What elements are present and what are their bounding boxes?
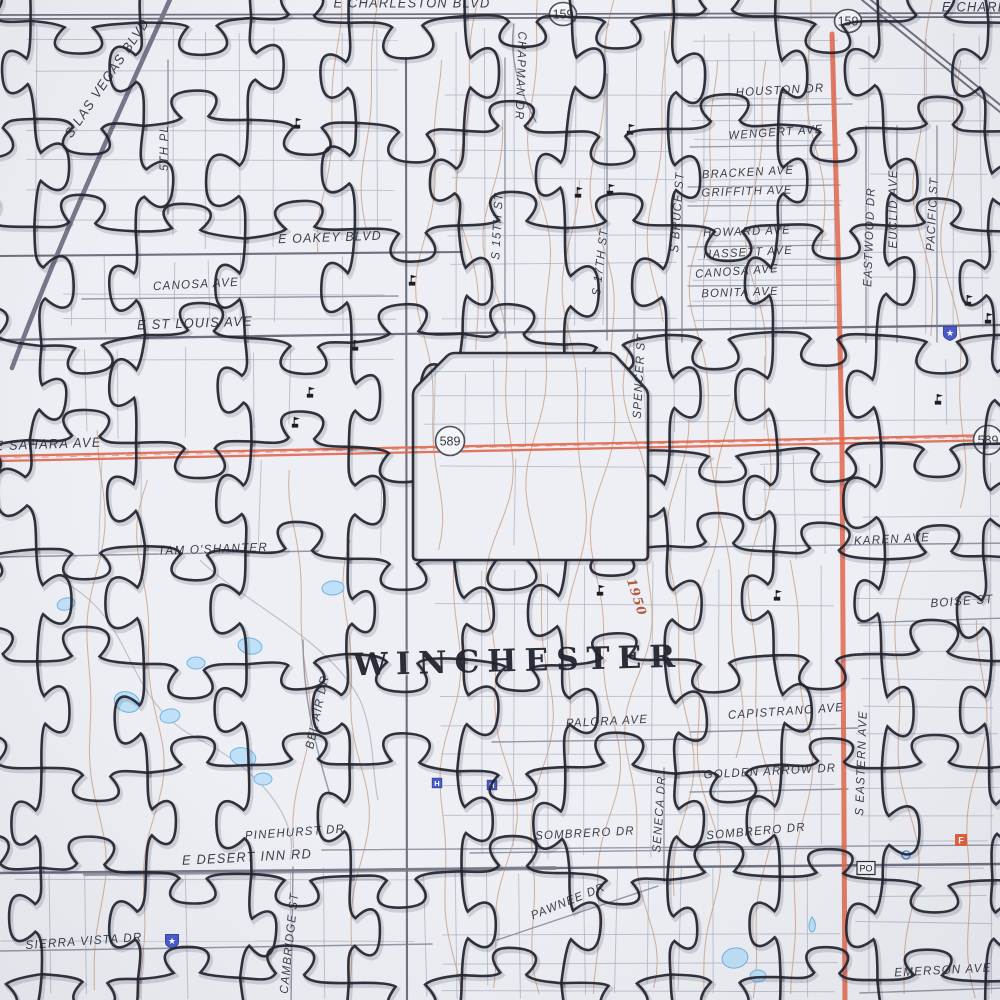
highway-shields: 159159589589	[436, 3, 1000, 456]
school-flag-icon	[307, 387, 315, 398]
street-label: E ST LOUIS AVE	[137, 313, 253, 332]
school-flag-icon	[294, 118, 302, 129]
svg-text:589: 589	[978, 433, 999, 447]
street-label: CANOSA AVE	[695, 261, 780, 281]
street-label: PAWNEE DR	[529, 880, 608, 923]
street-label: HOWARD AVE	[703, 222, 791, 239]
star-shield-icon: ★	[944, 327, 957, 341]
street-label: CAPISTRANO AVE	[727, 700, 844, 722]
puzzle-grid-lines	[0, 0, 1000, 1000]
street-label: EUCLID AVE	[886, 169, 900, 248]
hospital-icon: H	[487, 780, 497, 790]
svg-text:F: F	[958, 835, 964, 845]
highway-shield: 159	[835, 10, 862, 33]
school-flag-icon	[607, 184, 615, 195]
street-label: S BRUCE ST	[667, 171, 687, 253]
puzzle-map-photo: ★★HHPOF 159159589589 E CHARLESTON BLVDE …	[0, 0, 1000, 1000]
fire-station-icon: F	[955, 834, 967, 846]
well-icon	[902, 851, 910, 859]
school-flag-icon	[627, 124, 635, 135]
star-shield-icon: ★	[166, 935, 179, 949]
highway-shield: 159	[550, 3, 577, 26]
svg-text:H: H	[434, 779, 439, 788]
svg-text:589: 589	[440, 434, 461, 448]
svg-text:PO: PO	[859, 863, 872, 873]
minor-street-grid	[0, 25, 999, 999]
spring-icon	[809, 917, 815, 932]
street-label: CANOSA AVE	[153, 275, 240, 293]
street-label: S 15TH ST	[488, 192, 506, 260]
school-flag-icon	[774, 590, 782, 601]
street-label: CAMBRIDGE ST	[277, 892, 302, 995]
street-label: PACIFIC ST	[923, 177, 941, 252]
map-artwork: ★★HHPOF 159159589589	[0, 0, 1000, 1000]
street-label: HOUSTON DR	[735, 81, 824, 100]
street-label: E CHARLESTON BLVD	[334, 0, 491, 11]
water-ponds	[56, 580, 816, 982]
place-label: WINCHESTER	[353, 639, 684, 684]
svg-text:★: ★	[168, 936, 176, 946]
street-label: EMERSON AVE	[894, 960, 992, 979]
school-flag-icon	[935, 394, 943, 405]
school-flag-icon	[575, 187, 583, 198]
roads	[0, 0, 1000, 1000]
post-office-icon: PO	[857, 862, 875, 875]
svg-text:★: ★	[946, 328, 954, 338]
street-label: BONITA AVE	[701, 284, 779, 301]
street-label: EASTWOOD DR	[860, 187, 877, 287]
street-label: S-17TH ST	[589, 227, 611, 296]
svg-text:H: H	[489, 781, 494, 790]
street-label: SIERRA VISTA DR	[25, 930, 143, 952]
map-labels: E CHARLESTON BLVDE CHARLS LAS VEGAS BLVD…	[0, 0, 1000, 1000]
street-label: WENGERT AVE	[728, 122, 824, 143]
svg-text:159: 159	[838, 14, 859, 28]
highway-shield: 589	[974, 426, 1000, 455]
street-label: BEL AIR DR	[302, 674, 331, 750]
street-label: KAREN AVE	[854, 530, 931, 548]
contour-elevation-label: 1950	[624, 576, 650, 618]
school-flag-icon	[409, 275, 417, 286]
street-label: BRACKEN AVE	[702, 163, 795, 182]
school-flag-icon	[965, 295, 973, 306]
street-label: PINEHURST DR	[244, 822, 345, 843]
street-label: E DESERT INN RD	[182, 846, 313, 868]
street-label: GOLDEN ARROW DR	[703, 761, 836, 782]
large-center-puzzle-piece-outline	[413, 353, 648, 560]
street-label: TAM O'SHANTER	[158, 540, 269, 558]
school-flag-icon	[292, 417, 300, 428]
street-label: E SAHARA AVE	[0, 435, 102, 454]
street-label: BOISE ST	[930, 592, 994, 610]
highway-shield: 589	[436, 427, 465, 456]
street-label: CHAPMAN DR	[512, 31, 529, 120]
street-label: 5TH PL	[157, 125, 171, 171]
street-label: GRIFFITH AVE	[701, 182, 792, 199]
street-label: SPENCER ST	[630, 333, 648, 419]
hospital-icon: H	[432, 778, 442, 788]
school-flag-icon	[597, 585, 605, 596]
photo-vignette	[0, 0, 1000, 1000]
puzzle-cut-lines	[0, 0, 1000, 1000]
map-symbols: ★★HHPOF	[166, 118, 994, 949]
school-flag-icon	[985, 313, 993, 324]
street-label: E CHARL	[942, 0, 1000, 15]
street-label: SENECA DR	[649, 775, 668, 853]
street-label: S LAS VEGAS BLVD	[62, 16, 153, 141]
street-label: PALORA AVE	[566, 712, 649, 730]
street-label: E OAKEY BLVD	[278, 228, 382, 247]
street-label: HASSETT AVE	[703, 243, 793, 262]
street-label: S EASTERN AVE	[852, 710, 870, 816]
street-label: SOMBRERO DR	[706, 820, 807, 843]
svg-text:159: 159	[553, 7, 574, 21]
school-flag-icon	[352, 340, 360, 351]
street-label: SOMBRERO DR	[535, 823, 635, 842]
contour-lines	[87, 0, 987, 998]
